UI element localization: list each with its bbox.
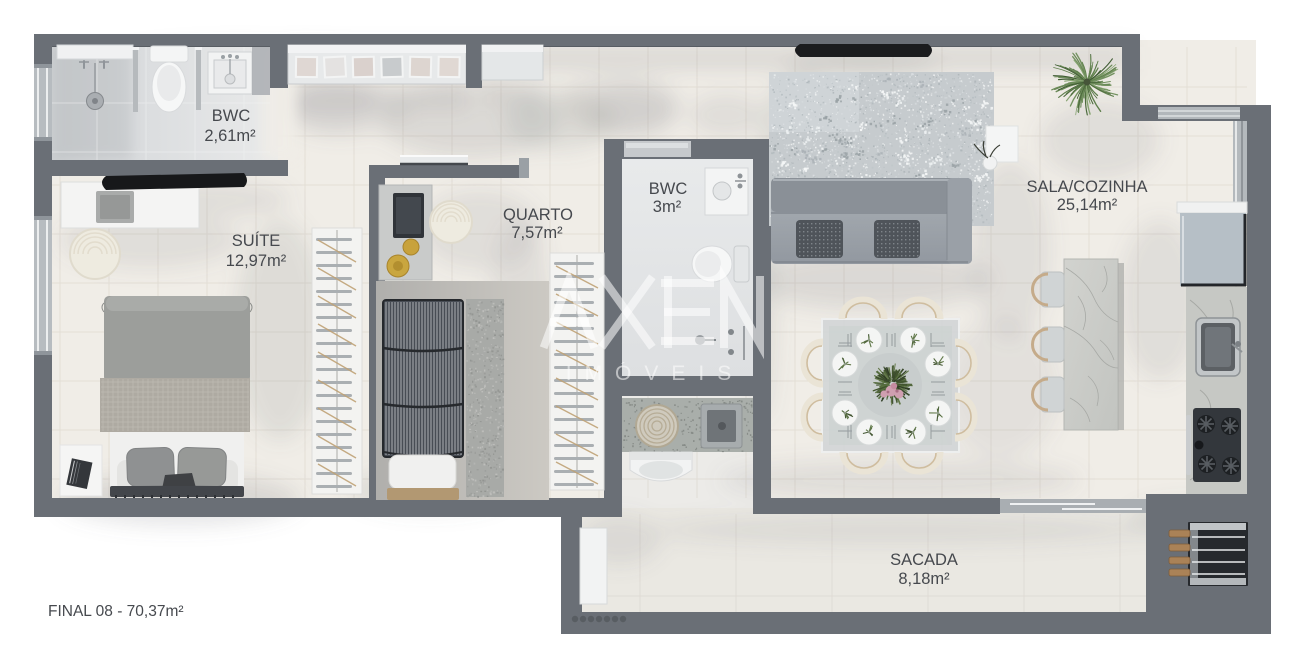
svg-text:7,57m²: 7,57m² xyxy=(511,224,563,242)
svg-text:2,61m²: 2,61m² xyxy=(204,127,256,145)
svg-text:SACADA: SACADA xyxy=(890,551,958,569)
svg-text:BWC: BWC xyxy=(212,107,251,125)
svg-text:SALA/COZINHA: SALA/COZINHA xyxy=(1026,178,1147,196)
svg-text:8,18m²: 8,18m² xyxy=(898,570,950,588)
svg-text:SUÍTE: SUÍTE xyxy=(232,231,281,250)
svg-text:25,14m²: 25,14m² xyxy=(1057,196,1118,214)
svg-text:12,97m²: 12,97m² xyxy=(226,252,287,270)
svg-text:BWC: BWC xyxy=(649,180,688,198)
svg-text:IMÓVEIS: IMÓVEIS xyxy=(566,362,745,385)
svg-text:QUARTO: QUARTO xyxy=(503,206,573,224)
svg-text:3m²: 3m² xyxy=(653,198,682,216)
svg-text:FINAL 08 - 70,37m²: FINAL 08 - 70,37m² xyxy=(48,603,184,620)
